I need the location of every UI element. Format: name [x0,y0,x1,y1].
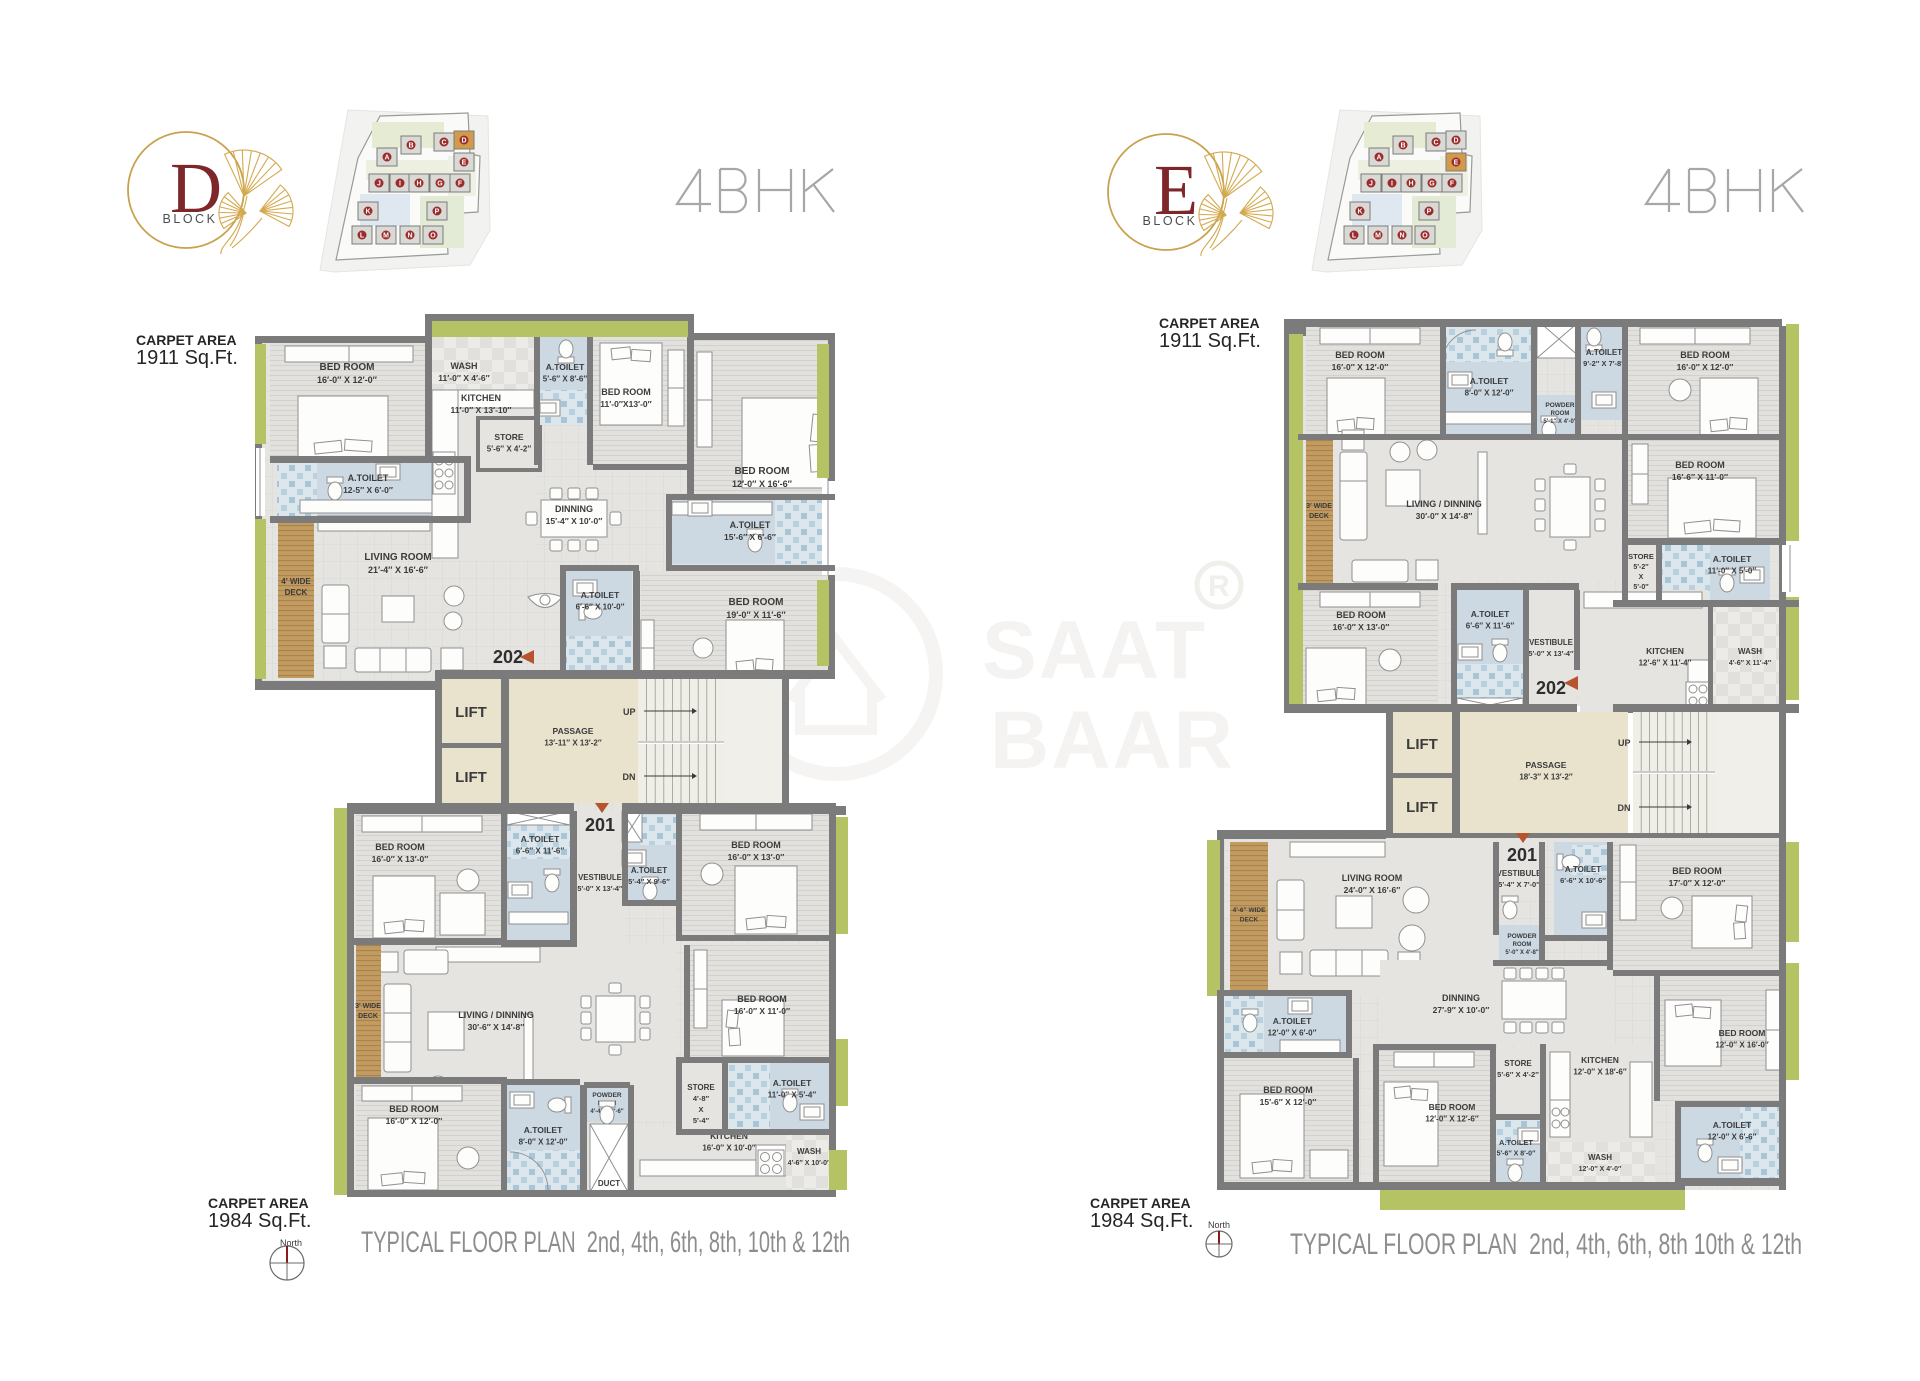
svg-text:DECK: DECK [285,588,308,597]
svg-text:A.TOILET: A.TOILET [1273,1016,1312,1026]
svg-text:LIFT: LIFT [455,769,487,786]
svg-text:E: E [1454,160,1459,167]
svg-text:15′-6″ X 12′-0″: 15′-6″ X 12′-0″ [1260,1097,1317,1107]
svg-text:A.TOILET: A.TOILET [1470,376,1509,386]
svg-text:LIFT: LIFT [455,704,487,721]
svg-text:11′-0″ X 5′-4″: 11′-0″ X 5′-4″ [768,1091,817,1100]
svg-text:North: North [1208,1220,1230,1230]
svg-text:O: O [430,233,436,240]
svg-text:CARPET AREA: CARPET AREA [1090,1195,1191,1211]
svg-text:12′-0″ X 18′-6″: 12′-0″ X 18′-6″ [1573,1068,1626,1077]
svg-text:DN: DN [1618,803,1634,813]
svg-text:D: D [1453,138,1458,145]
svg-text:KITCHEN: KITCHEN [461,393,501,403]
svg-text:X: X [1639,574,1644,581]
svg-text:12′-0″ X 6′-0″: 12′-0″ X 6′-0″ [1268,1029,1317,1038]
svg-text:VESTIBULE: VESTIBULE [1529,638,1573,647]
svg-text:POWDER: POWDER [1545,402,1575,409]
svg-text:P: P [1427,209,1432,216]
svg-text:WASH: WASH [1738,647,1762,656]
svg-text:5′-4″ X 7′-0″: 5′-4″ X 7′-0″ [1498,880,1540,889]
svg-text:DN: DN [623,772,639,782]
svg-text:11′-0″ X 5′-0″: 11′-0″ X 5′-0″ [1708,567,1757,576]
svg-text:L: L [360,233,365,240]
svg-text:M: M [1375,233,1381,240]
svg-text:6′-6″ X 11′-6″: 6′-6″ X 11′-6″ [1466,622,1515,631]
svg-text:PASSAGE: PASSAGE [1526,760,1567,770]
svg-text:STORE: STORE [494,432,523,442]
svg-text:F: F [1450,181,1455,188]
svg-text:WASH: WASH [1588,1153,1612,1162]
svg-text:16′-0″ X 12′-0″: 16′-0″ X 12′-0″ [1332,362,1389,372]
svg-text:BED ROOM: BED ROOM [731,840,781,850]
svg-text:STORE: STORE [1504,1059,1532,1068]
svg-text:16′-0″ X 10′-0″: 16′-0″ X 10′-0″ [702,1144,755,1153]
svg-text:202: 202 [493,647,523,667]
svg-text:12′-0″ X 16′-6″: 12′-0″ X 16′-6″ [732,479,793,489]
svg-text:ROOM: ROOM [1513,942,1532,948]
svg-text:6′-6″ X 11′-6″: 6′-6″ X 11′-6″ [516,847,565,856]
svg-text:CARPET AREA: CARPET AREA [1159,315,1260,331]
svg-text:LIVING ROOM: LIVING ROOM [364,552,431,563]
svg-text:24′-0″ X 16′-6″: 24′-0″ X 16′-6″ [1344,885,1401,895]
svg-text:11′-0″X13′-0″: 11′-0″X13′-0″ [600,399,651,409]
svg-text:1911 Sq.Ft.: 1911 Sq.Ft. [1159,330,1261,352]
svg-text:BED ROOM: BED ROOM [1672,866,1722,876]
svg-text:5′-0″ X 13′-4″: 5′-0″ X 13′-4″ [1528,649,1574,658]
svg-text:KITCHEN: KITCHEN [1581,1055,1619,1065]
svg-text:A.TOILET: A.TOILET [773,1078,812,1088]
svg-text:H: H [416,181,421,188]
svg-text:11′-0″ X 13′-10″: 11′-0″ X 13′-10″ [451,405,512,415]
svg-text:LIVING / DINNING: LIVING / DINNING [458,1010,534,1020]
svg-text:K: K [365,209,370,216]
svg-text:SAAT: SAAT [982,605,1207,696]
svg-text:PASSAGE: PASSAGE [553,726,594,736]
svg-text:12′-0″ X 6′-6″: 12′-0″ X 6′-6″ [1708,1133,1757,1142]
svg-text:BED ROOM: BED ROOM [389,1104,439,1114]
svg-text:9′-2″ X 7′-8″: 9′-2″ X 7′-8″ [1583,359,1625,368]
svg-text:16′-0″ X 12′-0″: 16′-0″ X 12′-0″ [386,1116,443,1126]
svg-text:J: J [377,181,381,188]
svg-text:STORE: STORE [687,1083,715,1092]
svg-text:5′-0″ X 4′-8″: 5′-0″ X 4′-8″ [1505,950,1538,956]
svg-text:DECK: DECK [1309,513,1329,520]
svg-text:LIVING ROOM: LIVING ROOM [1342,873,1403,883]
svg-text:STORE: STORE [1628,552,1654,561]
svg-text:16′-0″ X 12′-0″: 16′-0″ X 12′-0″ [317,375,378,385]
svg-text:C: C [1433,140,1438,147]
svg-text:B: B [408,143,413,150]
svg-text:17′-0″ X 12′-0″: 17′-0″ X 12′-0″ [1669,878,1726,888]
svg-text:BED ROOM: BED ROOM [1335,350,1385,360]
svg-text:DINNING: DINNING [555,504,593,514]
svg-text:DUCT: DUCT [598,1179,620,1188]
svg-text:R: R [1208,570,1230,603]
svg-text:A.TOILET: A.TOILET [1586,348,1622,357]
svg-text:201: 201 [585,815,615,835]
svg-text:H: H [1408,181,1413,188]
svg-text:BED ROOM: BED ROOM [1675,460,1725,470]
svg-text:5′-4″: 5′-4″ [693,1116,710,1125]
svg-text:LIFT: LIFT [1406,736,1438,753]
svg-text:5′-4″ X 9′-6″: 5′-4″ X 9′-6″ [628,877,670,886]
svg-text:BLOCK: BLOCK [163,212,218,226]
svg-text:8′-0″ X 12′-0″: 8′-0″ X 12′-0″ [1465,389,1514,398]
svg-text:A.TOILET: A.TOILET [730,520,771,530]
svg-text:BAAR: BAAR [990,695,1235,786]
svg-text:KITCHEN: KITCHEN [1646,646,1684,656]
svg-text:POWDER: POWDER [1507,933,1537,940]
svg-text:BED ROOM: BED ROOM [320,362,375,373]
svg-text:201: 201 [1507,845,1537,865]
svg-text:11′-0″ X 4′-6″: 11′-0″ X 4′-6″ [438,373,489,383]
svg-text:A.TOILET: A.TOILET [1499,1138,1533,1147]
svg-text:G: G [437,181,443,188]
svg-text:4′-6″ X 10′-0″: 4′-6″ X 10′-0″ [788,1160,831,1167]
svg-text:18′-3″ X 13′-2″: 18′-3″ X 13′-2″ [1519,773,1572,782]
svg-text:A: A [1376,155,1381,162]
svg-text:VESTIBULE: VESTIBULE [578,873,622,882]
svg-text:D: D [461,138,466,145]
svg-text:16′-0″ X 11′-0″: 16′-0″ X 11′-0″ [734,1006,790,1016]
svg-text:5′-6″ X 4′-2″: 5′-6″ X 4′-2″ [1497,1070,1539,1079]
svg-text:BED ROOM: BED ROOM [1429,1102,1476,1112]
svg-text:N: N [407,233,412,240]
svg-text:WASH: WASH [451,361,478,371]
svg-text:21′-4″ X 16′-6″: 21′-4″ X 16′-6″ [368,565,429,575]
svg-text:A.TOILET: A.TOILET [1713,554,1752,564]
svg-text:202: 202 [1536,678,1566,698]
svg-text:6′-6″ X 10′-0″: 6′-6″ X 10′-0″ [576,603,625,612]
svg-text:A: A [384,155,389,162]
svg-text:A.TOILET: A.TOILET [631,866,667,875]
svg-text:4′ WIDE: 4′ WIDE [281,577,311,586]
svg-text:27′-9″ X 10′-0″: 27′-9″ X 10′-0″ [1433,1005,1490,1015]
svg-text:12′-0″ X 16′-0″: 12′-0″ X 16′-0″ [1715,1041,1768,1050]
svg-text:19′-0″ X 11′-6″: 19′-0″ X 11′-6″ [726,610,786,620]
svg-text:16′-0″ X 13′-0″: 16′-0″ X 13′-0″ [1333,622,1390,632]
svg-text:3′ WIDE: 3′ WIDE [1306,503,1332,510]
svg-text:6′-6″ X 10′-6″: 6′-6″ X 10′-6″ [1560,876,1606,885]
svg-text:5′-6″ X 8′-0″: 5′-6″ X 8′-0″ [1497,1151,1537,1158]
svg-text:4′-6″ X 11′-4″: 4′-6″ X 11′-4″ [1729,660,1772,667]
svg-text:LIFT: LIFT [1406,799,1438,816]
svg-text:J: J [1369,181,1373,188]
svg-text:BED ROOM: BED ROOM [1719,1028,1766,1038]
svg-text:A.TOILET: A.TOILET [524,1125,563,1135]
svg-text:O: O [1422,233,1428,240]
svg-text:WASH: WASH [797,1147,821,1156]
svg-text:12′-0″ X 12′-6″: 12′-0″ X 12′-6″ [1425,1115,1478,1124]
svg-text:K: K [1357,209,1362,216]
svg-text:UP: UP [1618,738,1633,748]
svg-text:BED ROOM: BED ROOM [375,842,425,852]
svg-text:BED ROOM: BED ROOM [601,387,651,397]
svg-text:TYPICAL FLOOR PLAN 2nd, 4th,: TYPICAL FLOOR PLAN 2nd, 4th, 6th, 8th 10… [1290,1228,1802,1261]
svg-text:5′-6″ X 8′-6″: 5′-6″ X 8′-6″ [543,375,588,384]
svg-text:15′-6″ X 6′-6″: 15′-6″ X 6′-6″ [724,532,776,542]
svg-text:5′-6″ X 4′-2″: 5′-6″ X 4′-2″ [487,445,532,454]
svg-text:LIVING / DINNING: LIVING / DINNING [1406,499,1482,509]
svg-text:5′-2″: 5′-2″ [1633,564,1649,571]
svg-text:8′-0″ X 12′-0″: 8′-0″ X 12′-0″ [519,1138,568,1147]
svg-text:X: X [698,1105,703,1114]
svg-text:BED ROOM: BED ROOM [1680,350,1730,360]
svg-text:G: G [1429,181,1435,188]
svg-text:12′-6″ X 11′-4″: 12′-6″ X 11′-4″ [1639,659,1692,668]
svg-text:30′-0″ X 14′-8″: 30′-0″ X 14′-8″ [1416,511,1473,521]
svg-text:1911 Sq.Ft.: 1911 Sq.Ft. [136,347,238,369]
svg-text:12′-0″ X 4′-0″: 12′-0″ X 4′-0″ [1579,1166,1622,1173]
svg-text:30′-6″ X 14′-8″: 30′-6″ X 14′-8″ [468,1022,525,1032]
svg-text:5′-0″: 5′-0″ [1633,584,1649,591]
svg-text:16′-0″ X 13′-0″: 16′-0″ X 13′-0″ [372,854,429,864]
svg-text:M: M [383,233,389,240]
svg-text:5′-0″ X 13′-4″: 5′-0″ X 13′-4″ [577,884,623,893]
svg-text:L: L [1352,233,1357,240]
svg-text:13′-11″ X 13′-2″: 13′-11″ X 13′-2″ [544,739,601,748]
svg-text:A.TOILET: A.TOILET [1471,609,1510,619]
svg-text:BED ROOM: BED ROOM [729,597,784,608]
svg-text:3′ WIDE: 3′ WIDE [355,1003,381,1010]
svg-text:A.TOILET: A.TOILET [348,473,389,483]
svg-text:F: F [458,181,463,188]
svg-text:16′-0″ X 12′-0″: 16′-0″ X 12′-0″ [1677,362,1734,372]
svg-text:1984 Sq.Ft.: 1984 Sq.Ft. [208,1210,311,1232]
svg-text:12-5″ X 6′-0″: 12-5″ X 6′-0″ [343,485,393,495]
svg-text:15′-4″ X 10′-0″: 15′-4″ X 10′-0″ [546,516,603,526]
svg-text:N: N [1399,233,1404,240]
svg-text:BED ROOM: BED ROOM [735,466,790,477]
svg-text:A.TOILET: A.TOILET [521,834,560,844]
svg-text:DECK: DECK [1240,917,1259,924]
svg-text:DINNING: DINNING [1442,993,1480,1003]
svg-text:A.TOILET: A.TOILET [1565,865,1601,874]
svg-text:BED ROOM: BED ROOM [1336,610,1386,620]
svg-text:1984 Sq.Ft.: 1984 Sq.Ft. [1090,1210,1193,1232]
svg-text:5′-1″ X 4′-0″: 5′-1″ X 4′-0″ [1543,419,1576,425]
svg-text:TYPICAL FLOOR PLAN 2nd, 4th,: TYPICAL FLOOR PLAN 2nd, 4th, 6th, 8th, 1… [361,1226,850,1259]
svg-text:UP: UP [623,707,638,717]
svg-text:BED ROOM: BED ROOM [737,994,787,1004]
svg-text:A.TOILET: A.TOILET [1713,1120,1752,1130]
svg-text:DECK: DECK [358,1013,378,1020]
svg-text:POWDER: POWDER [592,1092,622,1099]
svg-text:ROOM: ROOM [1551,411,1570,417]
svg-text:I: I [1391,181,1393,188]
svg-text:I: I [399,181,401,188]
svg-text:P: P [435,209,440,216]
svg-text:16′-0″ X 13′-0″: 16′-0″ X 13′-0″ [728,852,785,862]
svg-text:BED ROOM: BED ROOM [1263,1085,1313,1095]
svg-text:CARPET AREA: CARPET AREA [136,332,237,348]
svg-text:BLOCK: BLOCK [1143,214,1198,228]
svg-text:E: E [462,160,467,167]
svg-text:CARPET AREA: CARPET AREA [208,1195,309,1211]
svg-text:B: B [1400,143,1405,150]
svg-text:VESTIBULE: VESTIBULE [1497,869,1543,878]
svg-text:4′-8″: 4′-8″ [693,1094,710,1103]
svg-text:16′-6″ X 11′-0″: 16′-6″ X 11′-0″ [1672,472,1728,482]
svg-text:A.TOILET: A.TOILET [581,590,620,600]
svg-text:A.TOILET: A.TOILET [546,362,585,372]
svg-text:C: C [441,140,446,147]
svg-text:4′-6″ WIDE: 4′-6″ WIDE [1233,907,1267,914]
